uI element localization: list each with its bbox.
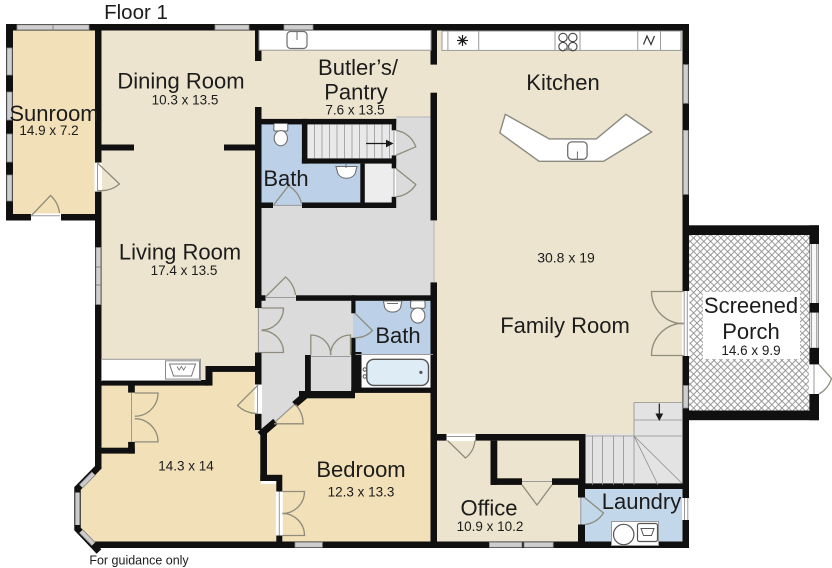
svg-text:Kitchen: Kitchen xyxy=(526,70,599,95)
svg-text:Living Room: Living Room xyxy=(119,240,241,265)
svg-text:Butler’s/: Butler’s/ xyxy=(318,55,399,80)
svg-text:14.6 x 9.9: 14.6 x 9.9 xyxy=(721,343,780,358)
svg-text:30.8 x 19: 30.8 x 19 xyxy=(537,250,595,266)
svg-text:7.6 x 13.5: 7.6 x 13.5 xyxy=(325,103,384,118)
svg-text:10.3 x 13.5: 10.3 x 13.5 xyxy=(152,93,219,108)
svg-text:Pantry: Pantry xyxy=(324,80,388,105)
svg-text:14.3 x 14: 14.3 x 14 xyxy=(158,459,214,474)
svg-text:Bedroom: Bedroom xyxy=(316,457,405,482)
svg-text:For guidance only: For guidance only xyxy=(89,554,189,568)
svg-text:Bath: Bath xyxy=(263,166,308,191)
svg-text:Family Room: Family Room xyxy=(500,313,630,338)
svg-text:Bath: Bath xyxy=(375,323,420,348)
svg-text:Porch: Porch xyxy=(722,319,779,344)
svg-text:17.4 x 13.5: 17.4 x 13.5 xyxy=(151,263,218,278)
svg-text:Floor 1: Floor 1 xyxy=(104,1,168,24)
svg-text:Laundry: Laundry xyxy=(602,489,682,514)
svg-text:Dining Room: Dining Room xyxy=(117,69,244,94)
svg-text:10.9 x 10.2: 10.9 x 10.2 xyxy=(457,519,524,534)
svg-text:12.3 x 13.3: 12.3 x 13.3 xyxy=(328,485,395,500)
svg-text:Screened: Screened xyxy=(704,293,798,318)
svg-text:Office: Office xyxy=(460,496,517,521)
svg-text:14.9 x 7.2: 14.9 x 7.2 xyxy=(19,123,78,138)
